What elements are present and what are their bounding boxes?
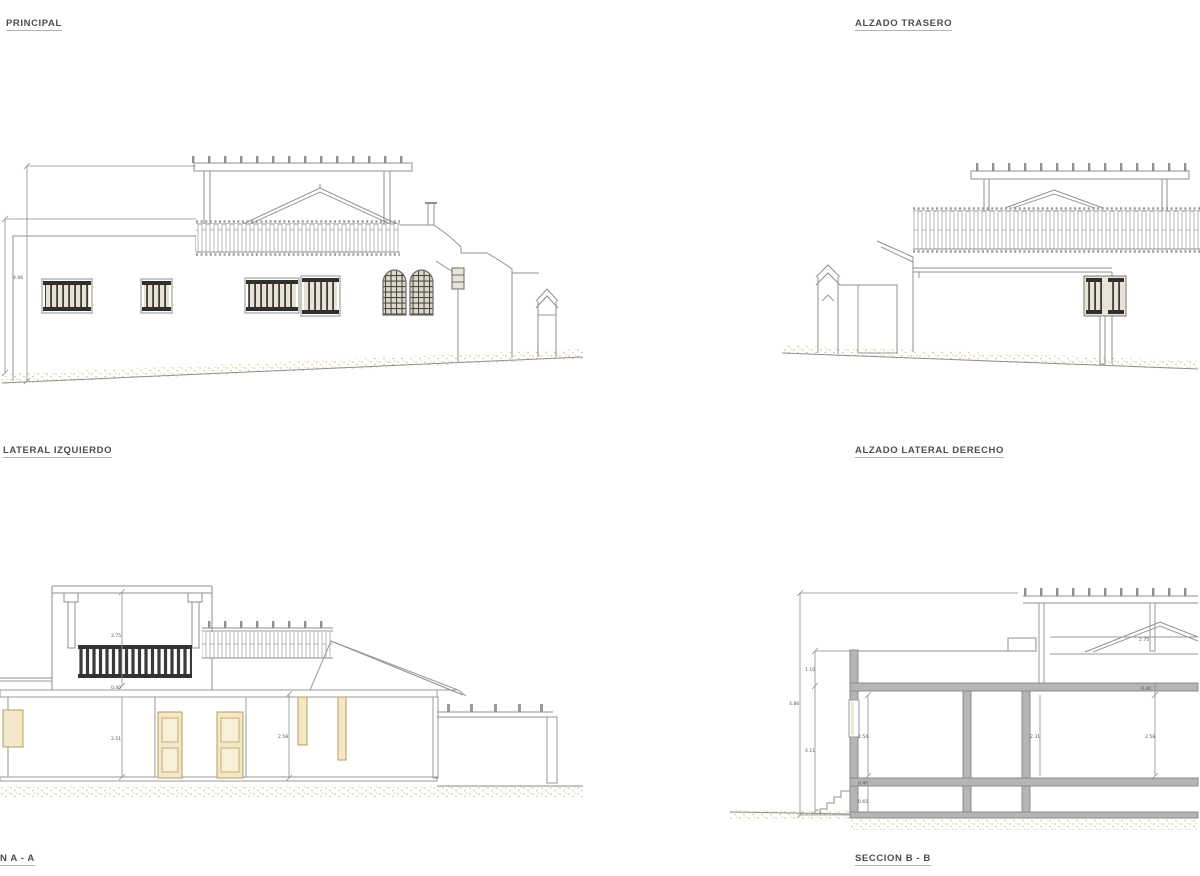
alzado-principal-drawing: 4.96 — [0, 140, 590, 400]
gable-roof — [243, 184, 397, 224]
roof-pillar — [428, 203, 434, 225]
dimension-label: 4.96 — [13, 275, 23, 281]
barred-window — [301, 276, 340, 316]
cut-structure — [820, 650, 1198, 818]
tiled-roof-slope — [310, 641, 466, 696]
arched-window — [410, 270, 433, 315]
barred-window — [42, 279, 92, 313]
foundation-stub — [850, 786, 858, 812]
terrace-balustrade — [202, 621, 333, 658]
dimension-label: 0.65 — [858, 799, 868, 805]
seccion-a-drawing: 2.75 0.40 2.51 2.58 — [0, 560, 590, 805]
chimney — [816, 265, 840, 354]
alzado-trasero-drawing — [780, 140, 1200, 400]
dark-balustrade — [78, 645, 192, 678]
pergola-post — [984, 179, 989, 211]
window-section — [3, 710, 23, 747]
gable-roof: 2.75 — [1050, 622, 1198, 654]
floor-slab — [850, 778, 1198, 786]
base-slab — [850, 812, 1198, 818]
gable-roof — [1005, 190, 1103, 208]
foundation-stub — [963, 786, 971, 812]
column-capital — [188, 593, 202, 602]
roof-slab — [0, 690, 437, 697]
parapet — [0, 678, 52, 681]
exterior-stairs — [840, 285, 897, 354]
door — [217, 712, 243, 778]
dimension-label: 4.11 — [805, 748, 815, 754]
pergola — [191, 156, 415, 224]
carport-beam — [913, 268, 1112, 364]
seccion-b-drawing: 4.86 1.10 4.11 2.75 — [730, 560, 1200, 835]
dimension-label: 4.86 — [789, 701, 799, 707]
barred-window — [141, 279, 172, 313]
window-frame — [851, 702, 854, 735]
window-post — [1100, 316, 1105, 364]
foundation-stub — [1022, 786, 1030, 812]
dimension-label: 2.75 — [111, 633, 121, 639]
terrace-balustrade — [913, 209, 1200, 252]
porch — [437, 704, 557, 783]
roof-terrace-line — [858, 638, 1036, 651]
exterior-wall-section — [433, 697, 438, 778]
label-seccion-b: SECCION B - B — [855, 853, 931, 866]
drawing-sheet: PRINCIPAL ALZADO TRASERO LATERAL IZQUIER… — [0, 0, 1200, 876]
pergola-post — [1150, 603, 1155, 651]
dimension-label: 2.58 — [278, 734, 288, 740]
side-roof-eave — [877, 241, 913, 352]
dimension-label: 2.75 — [1139, 637, 1149, 643]
dimension-lines: 4.96 — [2, 163, 196, 384]
barred-window — [245, 278, 299, 313]
interior-wall-section — [1022, 691, 1030, 778]
column — [68, 602, 75, 648]
dimension-label: 1.10 — [805, 667, 815, 673]
dimension-label: 2.31 — [1030, 734, 1040, 740]
door — [158, 712, 182, 778]
pergola — [1020, 588, 1198, 683]
interior-partitions — [8, 697, 246, 777]
dimension-label: 0.40 — [111, 685, 121, 691]
door-leaf-section — [298, 697, 307, 745]
dimension-lines: 2.75 0.40 2.51 2.58 — [111, 589, 292, 781]
ground — [2, 349, 583, 384]
dimension-label: 2.58 — [1145, 734, 1155, 740]
lamp-post — [436, 261, 464, 362]
label-alzado-trasero: ALZADO TRASERO — [855, 18, 952, 31]
pergola — [968, 163, 1194, 211]
interior-dimension-lines: 2.54 2.31 2.58 0.40 0.40 0.65 — [858, 683, 1158, 812]
pergola-post — [1039, 603, 1044, 683]
pergola-post — [204, 171, 210, 224]
label-alzado-principal: PRINCIPAL — [6, 18, 62, 31]
chimney — [536, 289, 558, 357]
label-alzado-lateral-izquierdo: LATERAL IZQUIERDO — [3, 445, 112, 458]
terrace-balustrade — [196, 222, 400, 255]
label-seccion-a: N A - A — [0, 853, 35, 866]
dimension-label: 2.51 — [111, 736, 121, 742]
door-leaf-section — [338, 697, 346, 760]
ground — [0, 785, 583, 797]
garden-wall-section — [547, 717, 557, 783]
label-alzado-lateral-derecho: ALZADO LATERAL DERECHO — [855, 445, 1004, 458]
ground — [782, 345, 1198, 370]
roof-terrace — [191, 156, 415, 255]
terrace-upstand — [1008, 638, 1036, 651]
column-capital — [64, 593, 78, 602]
dimension-label: 2.54 — [858, 734, 868, 740]
pergola-post — [1162, 179, 1167, 211]
barred-window — [1084, 276, 1126, 364]
tower — [52, 586, 212, 690]
interior-wall-section — [963, 691, 971, 778]
column — [192, 602, 199, 648]
arched-window — [383, 270, 406, 315]
dimension-label: 0.40 — [858, 781, 868, 787]
pergola-post — [384, 171, 390, 224]
dimension-label: 0.40 — [1141, 686, 1151, 692]
